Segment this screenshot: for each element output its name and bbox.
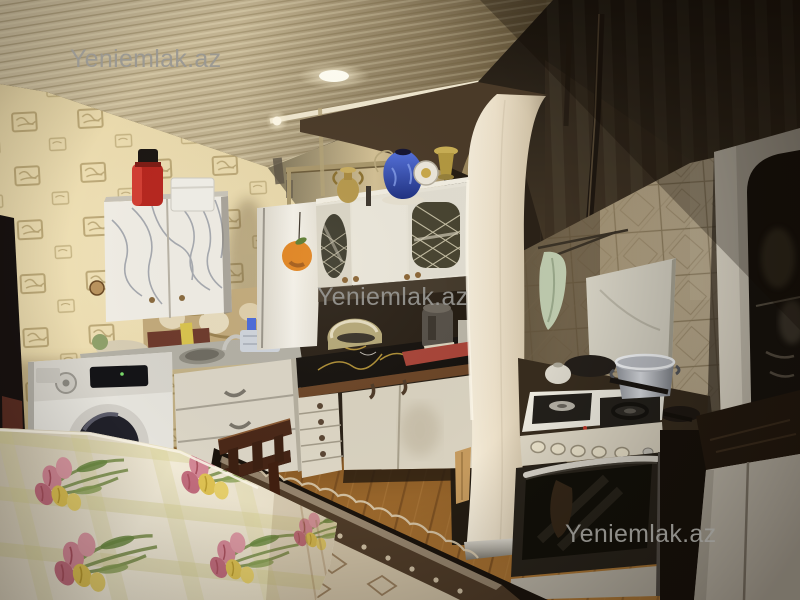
kitchen-scene xyxy=(0,0,800,600)
kitchen-photo: Yeniemlak.az Yeniemlak.az Yeniemlak.az xyxy=(0,0,800,600)
